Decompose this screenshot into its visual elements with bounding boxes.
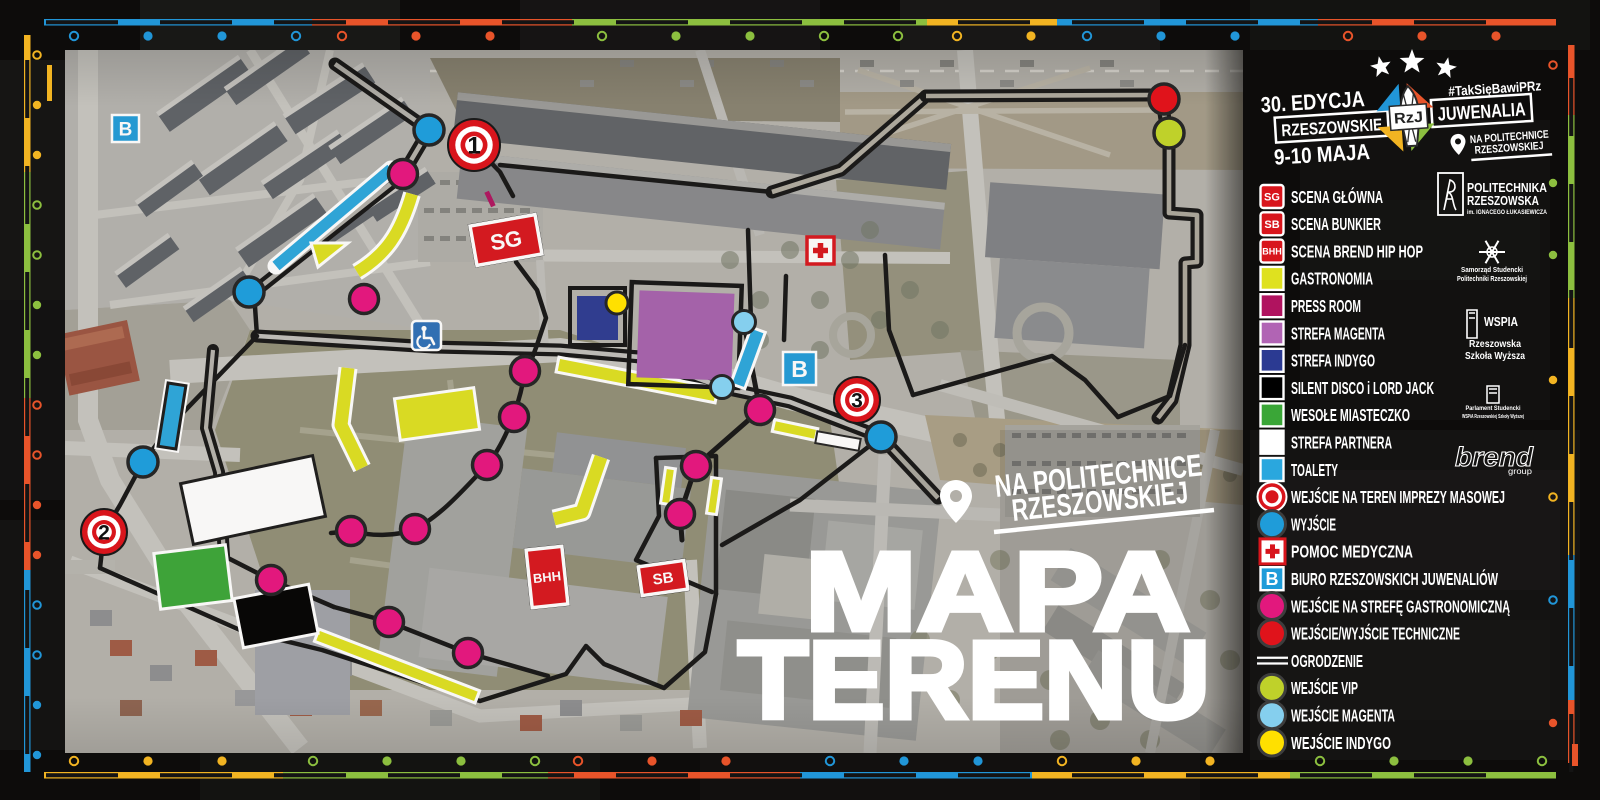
svg-text:WYJŚCIE: WYJŚCIE <box>1291 513 1336 534</box>
svg-text:WEJŚCIE VIP: WEJŚCIE VIP <box>1291 677 1358 698</box>
svg-text:BHH: BHH <box>1262 246 1282 256</box>
svg-text:WEJŚCIE NA STREFĘ GASTRONOMICZ: WEJŚCIE NA STREFĘ GASTRONOMICZNĄ <box>1291 595 1510 616</box>
svg-text:WEJŚCIE MAGENTA: WEJŚCIE MAGENTA <box>1291 705 1395 726</box>
svg-text:Parlament Studencki: Parlament Studencki <box>1466 405 1521 412</box>
svg-text:3: 3 <box>851 390 863 413</box>
svg-text:Szkoła Wyższa: Szkoła Wyższa <box>1465 350 1525 362</box>
svg-text:Rzeszowska: Rzeszowska <box>1469 338 1521 350</box>
svg-text:SB: SB <box>1264 219 1279 231</box>
svg-text:SILENT DISCO i LORD JACK: SILENT DISCO i LORD JACK <box>1291 378 1434 398</box>
svg-text:1: 1 <box>467 133 480 160</box>
svg-text:im. IGNACEGO ŁUKASIEWICZA: im. IGNACEGO ŁUKASIEWICZA <box>1467 209 1547 216</box>
svg-text:group: group <box>1508 467 1533 476</box>
svg-text:POMOC MEDYCZNA: POMOC MEDYCZNA <box>1291 542 1413 562</box>
svg-text:WEJŚCIE/WYJŚCIE TECHNICZNE: WEJŚCIE/WYJŚCIE TECHNICZNE <box>1291 623 1460 644</box>
svg-text:STREFA INDYGO: STREFA INDYGO <box>1291 351 1375 371</box>
svg-text:B: B <box>1266 569 1279 589</box>
svg-text:WEJŚCIE INDYGO: WEJŚCIE INDYGO <box>1291 732 1391 753</box>
svg-text:WSPIA: WSPIA <box>1484 314 1518 329</box>
svg-text:Samorząd Studencki: Samorząd Studencki <box>1461 267 1523 274</box>
svg-text:GASTRONOMIA: GASTRONOMIA <box>1291 269 1373 289</box>
svg-text:STREFA MAGENTA: STREFA MAGENTA <box>1291 323 1385 343</box>
svg-text:SG: SG <box>1264 191 1280 203</box>
svg-text:BIURO RZESZOWSKICH JUWENALIÓW: BIURO RZESZOWSKICH JUWENALIÓW <box>1291 568 1498 589</box>
svg-text:SCENA BUNKIER: SCENA BUNKIER <box>1291 214 1381 234</box>
svg-text:PRESS ROOM: PRESS ROOM <box>1291 296 1361 316</box>
svg-text:WSPiA Rzeszowskiej Szkoły Wyżs: WSPiA Rzeszowskiej Szkoły Wyższej <box>1462 414 1524 420</box>
svg-text:WESOŁE MIASTECZKO: WESOŁE MIASTECZKO <box>1291 405 1410 425</box>
svg-text:SCENA BREND HIP HOP: SCENA BREND HIP HOP <box>1291 241 1423 261</box>
svg-text:Politechniki Rzeszowskiej: Politechniki Rzeszowskiej <box>1457 276 1527 283</box>
svg-text:WEJŚCIE NA TEREN IMPREZY MASOW: WEJŚCIE NA TEREN IMPREZY MASOWEJ <box>1291 486 1505 507</box>
svg-text:OGRODZENIE: OGRODZENIE <box>1291 651 1363 671</box>
svg-text:TOALETY: TOALETY <box>1291 460 1338 480</box>
svg-text:STREFA PARTNERA: STREFA PARTNERA <box>1291 433 1392 453</box>
svg-text:2: 2 <box>98 522 110 545</box>
svg-text:SCENA GŁÓWNA: SCENA GŁÓWNA <box>1291 186 1383 207</box>
svg-text:RzJ: RzJ <box>1394 109 1424 128</box>
svg-text:TERENU: TERENU <box>738 619 1210 742</box>
svg-text:RZESZOWSKA: RZESZOWSKA <box>1467 193 1539 208</box>
